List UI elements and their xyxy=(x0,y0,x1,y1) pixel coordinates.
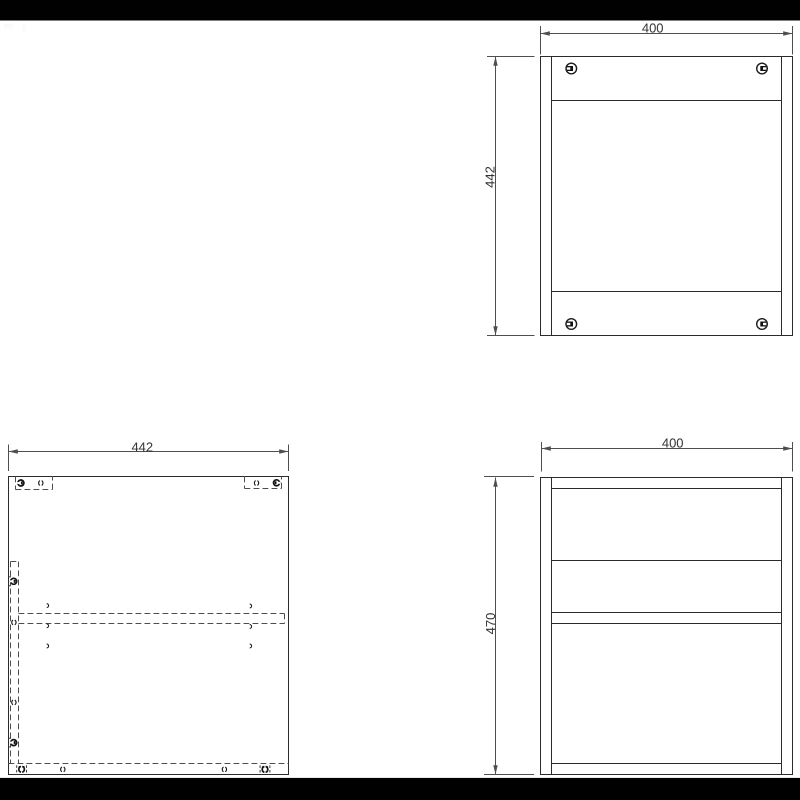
svg-text:442: 442 xyxy=(483,166,498,188)
svg-text:442: 442 xyxy=(131,439,153,454)
svg-text:400: 400 xyxy=(642,21,664,36)
svg-text:470: 470 xyxy=(483,613,498,635)
svg-text:400: 400 xyxy=(662,435,684,450)
